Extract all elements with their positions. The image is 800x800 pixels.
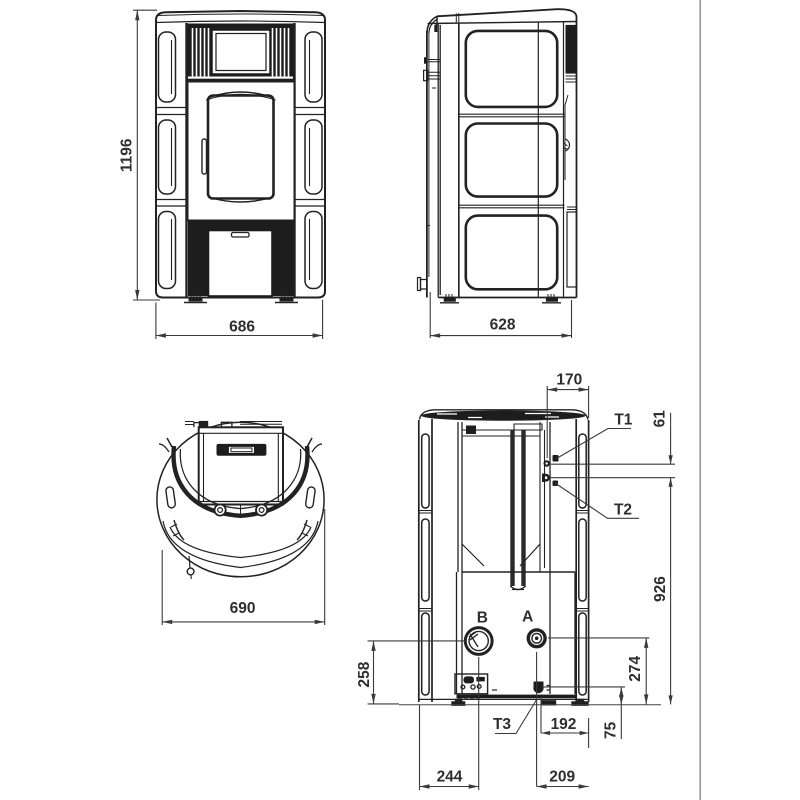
svg-text:628: 628 (490, 317, 516, 334)
svg-text:258: 258 (356, 661, 373, 687)
svg-text:926: 926 (652, 576, 669, 602)
svg-text:1196: 1196 (118, 138, 135, 172)
svg-text:75: 75 (603, 721, 620, 739)
svg-text:T3: T3 (493, 716, 511, 733)
svg-text:170: 170 (556, 371, 582, 388)
svg-text:B: B (477, 610, 488, 627)
svg-text:209: 209 (549, 769, 575, 786)
svg-text:274: 274 (627, 655, 644, 681)
svg-text:244: 244 (437, 769, 463, 786)
svg-text:T1: T1 (614, 412, 632, 429)
svg-text:61: 61 (652, 410, 669, 428)
svg-text:A: A (522, 609, 533, 626)
svg-text:192: 192 (551, 716, 577, 733)
svg-text:690: 690 (230, 600, 256, 617)
svg-text:T2: T2 (614, 502, 632, 519)
svg-text:686: 686 (229, 319, 255, 336)
